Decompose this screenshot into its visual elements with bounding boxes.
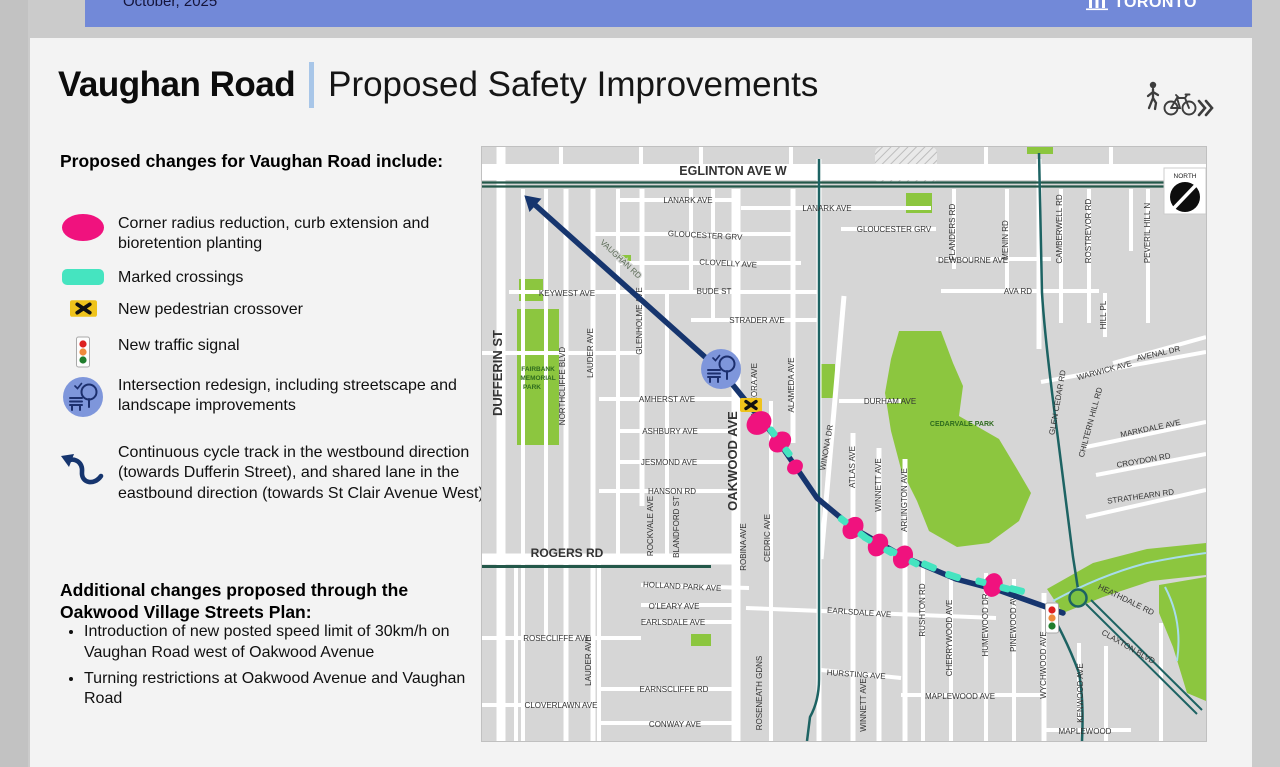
street-label: RUSHTON RD: [918, 583, 927, 636]
street-label: ROGERS RD: [531, 546, 604, 560]
street-label: LAUDER AVE: [584, 636, 593, 686]
legend-item-cycle-track: Continuous cycle track in the westbound …: [60, 443, 488, 504]
street-label: CHERRYWOOD AVE: [945, 600, 954, 677]
street-label: MAPLEWOOD: [1059, 727, 1112, 736]
street-label: KENWOOD AVE: [1076, 663, 1085, 722]
street-label: JESMOND AVE: [641, 458, 697, 467]
street-label: MAPLEWOOD AVE: [925, 692, 995, 701]
street-label: BUDE ST: [697, 287, 732, 296]
street-label: NORTHCLIFFE BLVD: [558, 347, 567, 426]
toronto-logo: TORONTO: [1085, 0, 1197, 12]
street-label: WINNETT AVE: [859, 678, 868, 732]
slide-card: Vaughan Road Proposed Safety Improvement…: [30, 38, 1252, 767]
street-label: LAUDER AVE: [586, 328, 595, 378]
intersection-marker: [701, 349, 741, 389]
legend-heading: Proposed changes for Vaughan Road includ…: [60, 151, 443, 173]
title-road-name: Vaughan Road: [58, 65, 295, 105]
legend-item-label: Continuous cycle track in the westbound …: [118, 443, 488, 504]
street-label: LANARK AVE: [802, 204, 851, 213]
pedestrian-crossover-icon: [60, 300, 106, 317]
street-label: MEMORIAL: [520, 375, 555, 382]
street-label: CEDRIC AVE: [763, 514, 772, 562]
street-label: PEVERIL HILL N: [1143, 203, 1152, 264]
street-label: WYCHWOOD AVE: [1039, 631, 1048, 698]
page-margin-strip: [0, 0, 28, 767]
legend-item-label: Marked crossings: [118, 268, 243, 288]
additional-bullet: Turning restrictions at Oakwood Avenue a…: [84, 669, 494, 711]
legend-item-pedestrian-crossover: New pedestrian crossover: [60, 300, 488, 320]
street-label: BLANDFORD ST: [672, 496, 681, 558]
street-label: ROCKVALE AVE: [646, 496, 655, 556]
legend-item-curb-extension: Corner radius reduction, curb extension …: [60, 214, 488, 255]
street-label: EARLSDALE AVE: [641, 618, 705, 627]
street-label: HILL PL: [1099, 300, 1108, 329]
legend-panel: Proposed changes for Vaughan Road includ…: [60, 148, 488, 760]
street-label: HUMEWOOD DR: [981, 593, 990, 656]
north-compass: NORTH: [1164, 168, 1206, 214]
title-separator: [309, 62, 314, 108]
legend-item-label: Intersection redesign, including streets…: [118, 376, 488, 417]
roundabout-marker: [1070, 590, 1087, 607]
north-label: NORTH: [1174, 173, 1197, 180]
legend-item-marked-crossings: Marked crossings: [60, 268, 488, 288]
street-label: HANSON RD: [648, 487, 696, 496]
street-label: EARNSCLIFFE RD: [640, 685, 709, 694]
street-label: ROSECLIFFE AVE: [523, 634, 590, 643]
street-label: FAIRBANK: [521, 366, 555, 373]
street-label: GLOUCESTER GRV: [857, 225, 932, 234]
street-label: ROSENEATH GDNS: [755, 656, 764, 731]
title-subtitle: Proposed Safety Improvements: [328, 65, 818, 105]
street-label: OAKWOOD AVE: [725, 411, 740, 511]
street-label: DUFFERIN ST: [490, 330, 505, 416]
street-label: AMHERST AVE: [639, 395, 695, 404]
street-label: FLANDERS RD: [948, 204, 957, 261]
street-label: LANARK AVE: [663, 196, 712, 205]
cycle-track-arrow-icon: [60, 443, 106, 489]
street-label: CLOVERLAWN AVE: [525, 701, 598, 710]
map: EGLINTON AVE WLANARK AVELANARK AVEGLOUCE…: [481, 146, 1207, 742]
city-hall-icon: [1085, 0, 1109, 11]
street-label: DURHAM AVE: [864, 397, 916, 406]
date-text: October, 2025: [123, 0, 217, 10]
street-label: CONWAY AVE: [649, 720, 701, 729]
additional-heading: Additional changes proposed through the …: [60, 580, 488, 624]
street-label: ARLINGTON AVE: [900, 468, 909, 532]
street-label: ROSTREVOR RD: [1084, 199, 1093, 264]
curb-extension-icon: [60, 214, 106, 241]
street-label: KEYWEST AVE: [539, 289, 595, 298]
street-label: ATLAS AVE: [848, 446, 857, 488]
legend-item-label: New traffic signal: [118, 336, 240, 356]
toronto-logo-text: TORONTO: [1114, 0, 1197, 12]
page: { "topbar": { "date": "October, 2025", "…: [0, 0, 1280, 767]
street-label: WINNETT AVE: [874, 458, 883, 512]
street-label: CAMBERWELL RD: [1055, 194, 1064, 264]
street-label: ASHBURY AVE: [642, 427, 698, 436]
intersection-redesign-icon: [60, 376, 106, 418]
traffic-signal-marker: [1046, 603, 1059, 633]
street-label: O'LEARY AVE: [649, 602, 700, 611]
street-label: PARK: [523, 384, 541, 391]
additional-bullet-list: Introduction of new posted speed limit o…: [62, 622, 494, 715]
legend-item-label: Corner radius reduction, curb extension …: [118, 214, 488, 255]
traffic-signal-icon: [60, 334, 106, 370]
street-label: ROBINA AVE: [739, 523, 748, 570]
page-title: Vaughan Road Proposed Safety Improvement…: [58, 62, 818, 108]
additional-bullet: Introduction of new posted speed limit o…: [84, 622, 494, 664]
street-label: AVA RD: [1004, 287, 1032, 296]
street-label: STRADER AVE: [729, 316, 784, 325]
top-bar: October, 2025 TORONTO: [85, 0, 1252, 27]
pedestrian-bicycle-icon: [1144, 80, 1218, 118]
street-label: ALAMEDA AVE: [787, 358, 796, 413]
legend-item-label: New pedestrian crossover: [118, 300, 303, 320]
street-label: MENIN RD: [1001, 220, 1010, 260]
street-label: CEDARVALE PARK: [930, 421, 994, 428]
street-label: EGLINTON AVE W: [679, 164, 787, 178]
legend-item-traffic-signal: New traffic signal: [60, 334, 488, 370]
legend-item-intersection-redesign: Intersection redesign, including streets…: [60, 376, 488, 418]
marked-crossing-icon: [60, 268, 106, 285]
map-svg: EGLINTON AVE WLANARK AVELANARK AVEGLOUCE…: [482, 147, 1206, 741]
pedestrian-crossover-marker: [740, 398, 762, 412]
